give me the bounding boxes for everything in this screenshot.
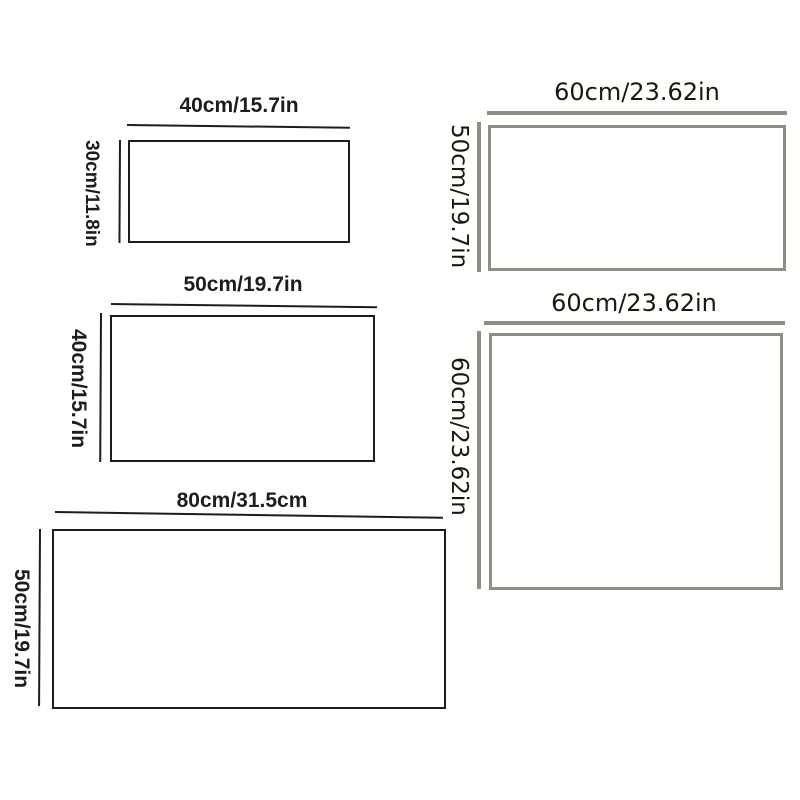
height-dimension-line bbox=[38, 529, 41, 706]
width-label: 60cm/23.62in bbox=[488, 77, 786, 107]
height-label: 50cm/19.7in bbox=[7, 549, 35, 709]
height-dimension-bar bbox=[477, 122, 481, 272]
width-label: 40cm/15.7in bbox=[128, 93, 350, 119]
height-label: 30cm/11.8in bbox=[78, 140, 104, 243]
size-rectangle bbox=[110, 315, 375, 462]
size-rectangle bbox=[488, 125, 786, 271]
height-label: 50cm/19.7in bbox=[445, 122, 473, 270]
height-dimension-line bbox=[118, 140, 121, 243]
height-dimension-line bbox=[99, 313, 102, 462]
width-label: 80cm/31.5cm bbox=[45, 488, 439, 514]
height-label: 60cm/23.62in bbox=[445, 356, 473, 516]
size-rectangle bbox=[489, 333, 783, 590]
width-dimension-line bbox=[111, 303, 377, 308]
width-dimension-line bbox=[127, 124, 350, 129]
width-label: 60cm/23.62in bbox=[485, 288, 783, 318]
size-rectangle bbox=[52, 529, 446, 709]
size-rectangle bbox=[128, 140, 350, 243]
width-label: 50cm/19.7in bbox=[111, 272, 375, 298]
width-dimension-bar bbox=[487, 111, 787, 115]
width-dimension-bar bbox=[484, 321, 785, 325]
size-chart: 40cm/15.7in 30cm/11.8in 50cm/19.7in 40cm… bbox=[0, 0, 800, 800]
height-label: 40cm/15.7in bbox=[64, 316, 92, 462]
height-dimension-bar bbox=[477, 331, 481, 589]
